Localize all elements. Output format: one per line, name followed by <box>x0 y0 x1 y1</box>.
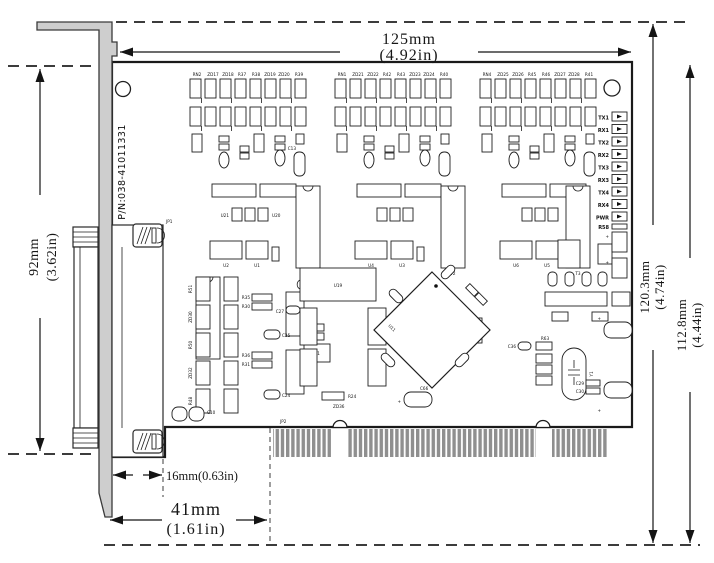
ref-label: R43 <box>397 72 406 77</box>
ref-label: R24 <box>348 394 357 399</box>
ref-label: R42 <box>383 72 392 77</box>
mounting-hole-left <box>116 82 131 97</box>
ref-label: U2 <box>223 263 229 268</box>
ref-label: ZD23 <box>409 72 421 77</box>
ref-label: ZD36 <box>333 404 345 409</box>
finger-segment <box>347 429 536 457</box>
pcb-dimension-diagram: RN2 ZD17 ZD18 R37 R38 ZD19 ZD20 R39 RN1 … <box>0 0 714 563</box>
ref-label: ZD19 <box>264 72 276 77</box>
ref-label: ZD17 <box>207 72 219 77</box>
ref-label: ZD26 <box>512 72 524 77</box>
ref-label: T3 <box>574 271 581 276</box>
dim-right-outer-mm: 120.3mm <box>637 261 652 314</box>
ref-label: R36 <box>242 353 251 358</box>
led-label: RX1 <box>598 128 610 134</box>
ref-label: ZD21 <box>352 72 364 77</box>
ref-label: R51 <box>188 285 193 294</box>
dim-right-inner-mm: 112.8mm <box>674 299 689 352</box>
ref-label: JP2 <box>279 419 287 424</box>
dsub-connector: JP1 <box>73 219 173 457</box>
ref-label: ZD20 <box>278 72 290 77</box>
dim-connector-offset-mm: 41mm <box>171 499 221 519</box>
ref-label: Y1 <box>589 371 594 378</box>
ref-label: C10 <box>207 410 216 415</box>
ref-label: U19 <box>334 283 343 288</box>
ref-label: R38 <box>252 72 261 77</box>
ref-label: ZD32 <box>188 367 193 379</box>
led-label: TX3 <box>598 166 609 172</box>
ref-label: JP1 <box>165 219 173 224</box>
dim-right-outer-inch: (4.74in) <box>652 264 667 310</box>
ref-label: ZD28 <box>568 72 580 77</box>
led-label: TX4 <box>598 191 609 197</box>
diagram-canvas: RN2 ZD17 ZD18 R37 R38 ZD19 ZD20 R39 RN1 … <box>0 0 714 563</box>
led-label: TX2 <box>598 141 609 147</box>
ref-label: C25 <box>282 333 291 338</box>
ref-label: C13 <box>288 146 297 151</box>
ref-label: C24 <box>282 393 291 398</box>
led-label: RX2 <box>598 153 610 159</box>
ref-label: C30 <box>576 389 585 394</box>
ref-label: R58 <box>598 225 609 231</box>
dim-top-mm: 125mm <box>382 31 436 48</box>
ref-label: U5 <box>544 263 550 268</box>
ref-label: RN2 <box>193 72 202 77</box>
ref-label: C36 <box>508 344 517 349</box>
ref-label: RN1 <box>338 72 347 77</box>
ref-label: U4 <box>368 263 374 268</box>
dim-right-inner-inch: (4.44in) <box>689 302 704 348</box>
dim-left-mm: 92mm <box>27 238 42 276</box>
part-number: P/N:038-41011331 <box>117 124 128 220</box>
ref-label: ZD30 <box>188 311 193 323</box>
ref-label: U1 <box>254 263 260 268</box>
plus-mark: + <box>605 234 609 239</box>
ref-label: U21 <box>221 213 230 218</box>
ref-label: R48 <box>188 397 193 406</box>
ref-label: R39 <box>295 72 304 77</box>
ref-label: R41 <box>585 72 594 77</box>
ref-label: U20 <box>272 213 281 218</box>
finger-segment <box>273 429 331 457</box>
ref-label: RN4 <box>483 72 492 77</box>
ref-label: ZD24 <box>423 72 435 77</box>
ref-label: R45 <box>528 72 537 77</box>
ref-label: ZD18 <box>222 72 234 77</box>
dim-top-inch: (4.92in) <box>379 47 438 64</box>
ref-label: R50 <box>188 341 193 350</box>
led-label: RX4 <box>598 203 610 209</box>
mounting-hole-right <box>604 80 620 96</box>
plus-mark: + <box>397 399 401 404</box>
ref-label: ZD27 <box>554 72 566 77</box>
ref-label: U3 <box>399 263 405 268</box>
led-label: RX3 <box>598 178 610 184</box>
plus-mark: + <box>605 260 609 265</box>
ref-label: R63 <box>541 336 550 341</box>
ref-label: ZD22 <box>367 72 379 77</box>
ref-label: U6 <box>513 263 519 268</box>
led-label: PWR <box>596 216 609 222</box>
ref-label: R46 <box>542 72 551 77</box>
led-label: TX1 <box>598 116 609 122</box>
plus-mark: + <box>597 316 601 321</box>
plus-mark: + <box>597 408 601 413</box>
ref-label: R30 <box>242 304 251 309</box>
ref-label: ZD25 <box>497 72 509 77</box>
ref-label: C27 <box>276 309 285 314</box>
ref-label: R31 <box>242 362 251 367</box>
ref-label: R37 <box>238 72 247 77</box>
ref-label: R35 <box>242 295 251 300</box>
ref-label: C66 <box>420 386 429 391</box>
dim-connector-offset-inch: (1.61in) <box>166 521 225 538</box>
dim-bracket-offset: 16mm(0.63in) <box>166 469 238 483</box>
finger-segment <box>552 429 607 457</box>
ref-label: R40 <box>440 72 449 77</box>
dim-left-inch: (3.62in) <box>45 233 60 282</box>
ref-label: C29 <box>576 381 585 386</box>
